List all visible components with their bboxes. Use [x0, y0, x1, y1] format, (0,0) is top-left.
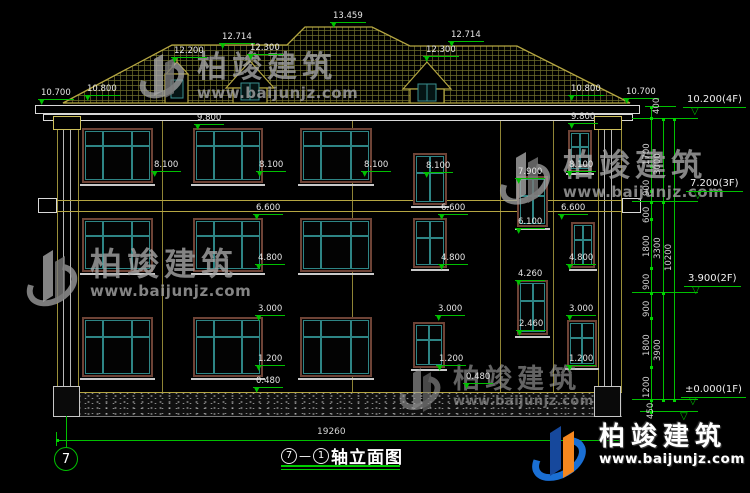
vertical-dim-label: 3000 — [654, 153, 663, 175]
vertical-dim-label: 1800 — [643, 334, 652, 356]
elevation-label: 8.100▼ — [256, 161, 286, 177]
roof-outline — [63, 27, 630, 103]
downpipe-left — [63, 130, 71, 392]
vertical-dim-label: 600 — [643, 207, 652, 223]
elevation-label: 12.300▼ — [247, 44, 283, 60]
eave-cornice-upper — [35, 105, 640, 114]
elevation-label: 12.300▼ — [423, 46, 459, 62]
elevation-label: 1.200▼ — [436, 355, 466, 371]
elevation-label: 8.100▼ — [423, 162, 453, 178]
vertical-dim-label: 1800 — [643, 235, 652, 257]
vertical-dim-label: 3300 — [654, 237, 663, 259]
dim-chain-line — [674, 118, 675, 400]
window — [82, 317, 153, 377]
vertical-dim-label: 400 — [653, 98, 662, 114]
plinth-band — [57, 392, 622, 417]
title-underline-thin — [281, 469, 400, 470]
vertical-dim-label: 1200 — [643, 376, 652, 398]
elevation-label: 8.100▼ — [361, 161, 391, 177]
floor-level-marker: 3.900(2F)▽ — [684, 274, 741, 295]
title-dash: — — [299, 449, 311, 463]
elevation-label: 6.600▼ — [253, 204, 283, 220]
elevation-label: 4.260▼ — [515, 270, 545, 286]
elevation-label: 8.100▼ — [566, 161, 596, 177]
cad-elevation-drawing: ▽ 19260 7 7 — 1 轴立面图 柏竣建筑 www.baijunjz.c… — [0, 0, 750, 493]
vertical-dim-label: 900 — [643, 274, 652, 290]
elevation-label: 8.100▼ — [151, 161, 181, 177]
floor-level-marker: ±0.000(1F)▽ — [681, 385, 746, 406]
floor-level-marker: 10.200(4F)▽ — [683, 95, 746, 116]
overall-dim-ext — [56, 432, 57, 446]
window — [82, 128, 153, 183]
elevation-label: 13.459▼ — [330, 12, 366, 28]
overall-width-dim: 19260 — [317, 427, 346, 437]
vertical-dim-label: 3900 — [654, 339, 663, 361]
window — [193, 317, 263, 377]
elevation-label: 9.800▼ — [568, 113, 598, 129]
dim-extension-line — [632, 201, 698, 202]
vertical-dim-label: 900 — [643, 301, 652, 317]
elevation-label: 4.800▼ — [255, 254, 285, 270]
elevation-label: 10.800▼ — [84, 85, 120, 101]
elevation-label: 6.100▼ — [515, 218, 545, 234]
elevation-label: 4.800▼ — [438, 254, 468, 270]
elevation-label: 9.800▼ — [194, 114, 224, 130]
title-underline-thick — [281, 465, 400, 467]
elevation-label: 4.800▼ — [566, 254, 596, 270]
elevation-label: 3.000▼ — [566, 305, 596, 321]
elevation-label: 10.700▼ — [38, 89, 74, 105]
elevation-label: 1.200▼ — [255, 355, 285, 371]
elevation-label: 6.600▼ — [558, 204, 588, 220]
floor-level-marker: 7.200(3F)▽ — [686, 179, 743, 200]
elevation-label: 7.900▼ — [515, 168, 545, 184]
downpipe-right — [604, 130, 612, 392]
elevation-label: 12.200▼ — [171, 47, 207, 63]
vertical-dim-label: 450 — [647, 403, 656, 419]
elevation-label: 6.600▼ — [438, 204, 468, 220]
dim-extension-line — [632, 118, 698, 119]
axis-bubble-label: 7 — [62, 452, 70, 467]
elevation-label: 3.000▼ — [435, 305, 465, 321]
pilaster-base-right — [594, 386, 621, 417]
window — [300, 317, 372, 377]
dim-tick-marks — [650, 117, 653, 120]
overall-dim-ext — [621, 432, 622, 446]
window — [300, 218, 372, 272]
window — [82, 218, 153, 272]
belt-course-left-cap — [38, 198, 57, 213]
vertical-dim-label: 10200 — [665, 244, 674, 271]
elevation-label: 2.460▼ — [516, 320, 546, 336]
elevation-label: 3.000▼ — [255, 305, 285, 321]
wall-joint-line — [500, 121, 501, 392]
vertical-dim-label: 1700 — [643, 143, 652, 165]
title-axis-from-bubble: 7 — [281, 448, 297, 464]
window — [193, 218, 263, 272]
title-axis-to-bubble: 1 — [313, 448, 329, 464]
elevation-label: 0.480▼ — [253, 377, 283, 393]
eave-cornice-lower — [43, 114, 633, 121]
axis-line — [66, 416, 67, 448]
elevation-label: 0.480▼ — [463, 373, 493, 389]
pilaster-base-left — [53, 386, 80, 417]
axis-bubble-7: 7 — [54, 447, 78, 471]
pilaster-capital-left — [53, 116, 81, 130]
window — [193, 128, 263, 183]
vertical-dim-label: 900 — [643, 180, 652, 196]
overall-dim-line — [57, 440, 622, 441]
wall-joint-line — [553, 121, 554, 392]
elevation-label: 1.200▼ — [566, 355, 596, 371]
ground-level-marker: ▽ — [680, 413, 688, 421]
elevation-label: 10.800▼ — [568, 85, 604, 101]
